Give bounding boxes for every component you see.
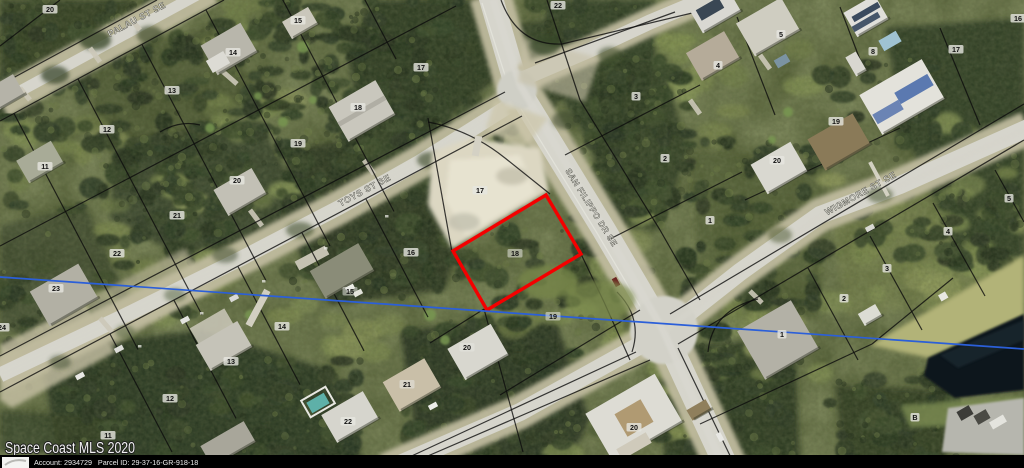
svg-text:12: 12 bbox=[103, 125, 111, 134]
svg-text:11: 11 bbox=[41, 162, 49, 171]
svg-text:Account: 2934729 Parcel ID:: Account: 2934729 Parcel ID: 29-37-16-GR-… bbox=[34, 458, 198, 467]
svg-text:3: 3 bbox=[885, 264, 889, 273]
svg-text:12: 12 bbox=[166, 394, 174, 403]
svg-text:5: 5 bbox=[1007, 194, 1011, 203]
svg-text:1: 1 bbox=[780, 330, 784, 339]
svg-text:20: 20 bbox=[233, 176, 241, 185]
svg-text:22: 22 bbox=[113, 249, 121, 258]
svg-text:20: 20 bbox=[630, 423, 638, 432]
svg-text:17: 17 bbox=[476, 186, 484, 195]
svg-text:3: 3 bbox=[634, 92, 638, 101]
svg-text:18: 18 bbox=[511, 249, 519, 258]
svg-text:19: 19 bbox=[294, 139, 302, 148]
svg-text:13: 13 bbox=[168, 86, 176, 95]
svg-text:23: 23 bbox=[52, 284, 60, 293]
svg-text:21: 21 bbox=[173, 211, 181, 220]
svg-text:19: 19 bbox=[549, 312, 557, 321]
svg-text:13: 13 bbox=[227, 357, 235, 366]
svg-text:B: B bbox=[912, 413, 917, 422]
svg-text:15: 15 bbox=[346, 287, 354, 296]
svg-text:8: 8 bbox=[871, 47, 875, 56]
svg-text:1: 1 bbox=[708, 216, 712, 225]
svg-text:20: 20 bbox=[463, 343, 471, 352]
svg-text:5: 5 bbox=[779, 30, 783, 39]
svg-text:4: 4 bbox=[716, 61, 720, 70]
svg-text:15: 15 bbox=[294, 16, 302, 25]
svg-text:17: 17 bbox=[417, 63, 425, 72]
svg-text:16: 16 bbox=[1014, 14, 1022, 23]
svg-text:2: 2 bbox=[842, 294, 846, 303]
svg-text:22: 22 bbox=[554, 1, 562, 10]
svg-text:Space Coast MLS 2020: Space Coast MLS 2020 bbox=[5, 440, 135, 458]
svg-text:2: 2 bbox=[663, 154, 667, 163]
svg-text:22: 22 bbox=[344, 417, 352, 426]
svg-text:14: 14 bbox=[229, 48, 237, 57]
svg-text:16: 16 bbox=[407, 248, 415, 257]
svg-text:4: 4 bbox=[946, 227, 950, 236]
svg-text:17: 17 bbox=[952, 45, 960, 54]
svg-text:21: 21 bbox=[403, 380, 411, 389]
svg-text:20: 20 bbox=[773, 156, 781, 165]
svg-text:20: 20 bbox=[46, 5, 54, 14]
svg-text:19: 19 bbox=[832, 117, 840, 126]
svg-text:18: 18 bbox=[354, 103, 362, 112]
svg-text:24: 24 bbox=[0, 323, 6, 332]
svg-text:14: 14 bbox=[278, 322, 286, 331]
